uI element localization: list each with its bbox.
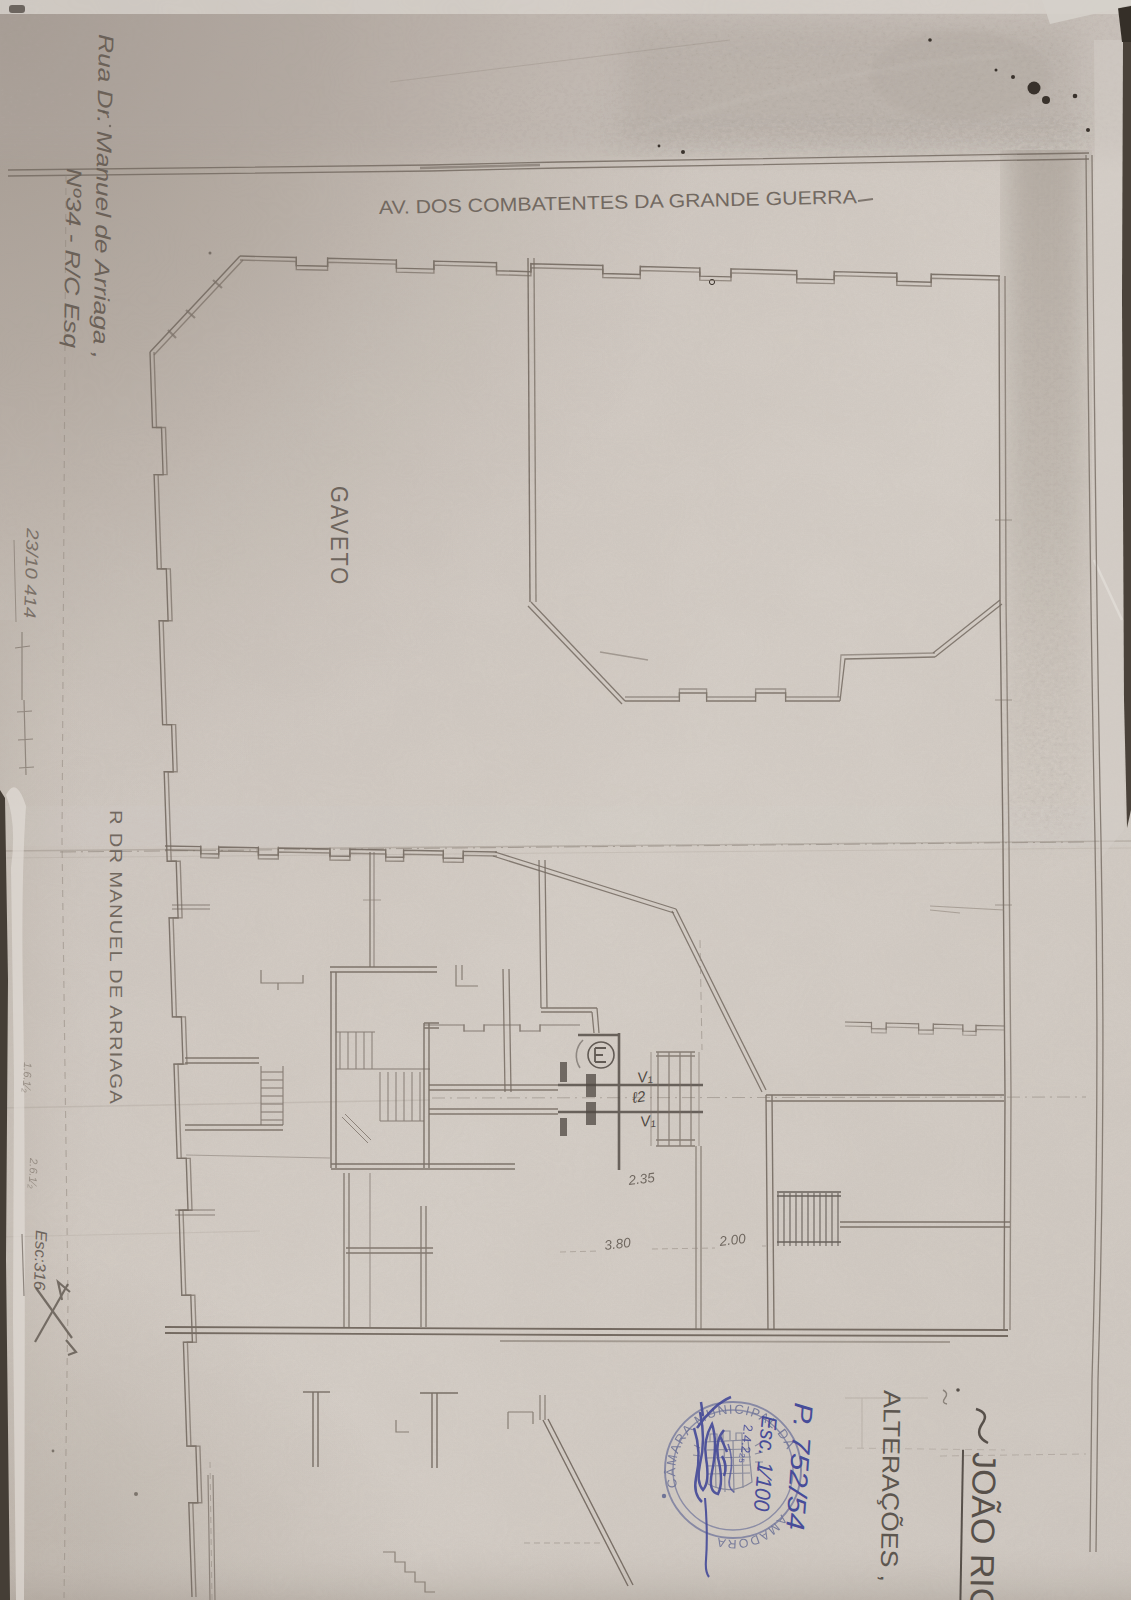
svg-text:V₁: V₁ — [639, 1111, 656, 1130]
svg-text:2.6.1⁄₂: 2.6.1⁄₂ — [27, 1157, 40, 1190]
svg-text:ALTERAÇÕES ,: ALTERAÇÕES , — [876, 1390, 906, 1582]
svg-text:Esc:316: Esc:316 — [31, 1230, 50, 1291]
svg-text:R DR MANUEL DE ARRIAGA: R DR MANUEL DE ARRIAGA — [107, 810, 124, 1105]
svg-text:JOÃO RIC: JOÃO RIC — [963, 1452, 1003, 1600]
svg-text:Nº34 - R/C Esq: Nº34 - R/C Esq — [60, 168, 86, 349]
svg-text:23/10 414: 23/10 414 — [20, 527, 42, 619]
svg-text:1.6.1⁄₂: 1.6.1⁄₂ — [21, 1062, 34, 1094]
svg-text:GAVETO: GAVETO — [326, 486, 353, 586]
